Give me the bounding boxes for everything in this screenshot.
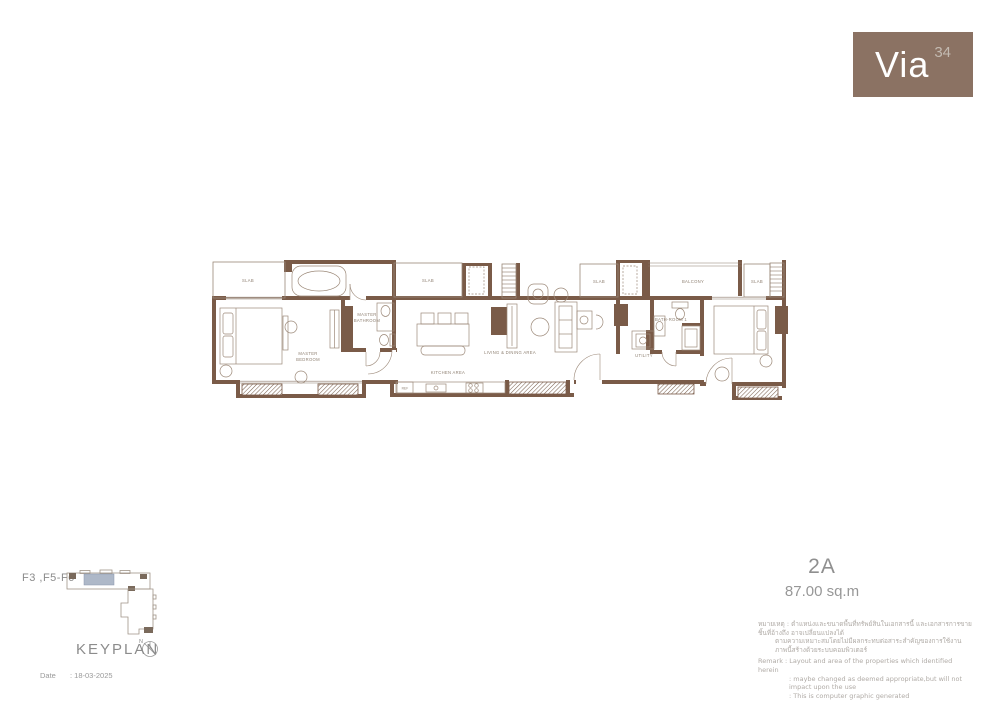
disclaimer-remark-line2: : maybe changed as deemed appropriate,bu… [758,675,973,692]
keyplan-unit-highlight [84,574,114,585]
disclaimer-block: หมายเหตุ : ตำแหน่งและขนาดพื้นที่ทรัพย์สิ… [758,620,973,700]
unit-info: 2A 87.00 sq.m [742,555,902,600]
keyplan-title: KEYPLAN [76,641,159,658]
remark-label: Remark [758,657,785,666]
date-label: Date [40,671,70,680]
remark-text-1: : Layout and area of the properties whic… [758,657,952,674]
slab-label-4: SLAB [751,279,763,284]
slab-label-2: SLAB [422,278,434,283]
brand-number: 34 [934,44,951,61]
disclaimer-thai-line1: หมายเหตุ : ตำแหน่งและขนาดพื้นที่ทรัพย์สิ… [758,620,973,637]
slab-label-1: SLAB [242,278,254,283]
master-bedroom-label-1: MASTER [298,351,317,356]
kitchen-fixtures [396,382,505,393]
balcony-label: BALCONY [682,279,704,284]
bathroom1-label: BATH-ROOM 1 [655,317,687,322]
bathroom1-utility-fixtures [632,302,700,350]
disclaimer-thai-line2: ตามความเหมาะสมโดยไม่มีผลกระทบต่อสาระสำคั… [758,637,973,646]
keyplan-building [67,570,156,634]
utility-label: UTILITY [635,353,653,358]
brand-name: Via [875,47,929,83]
living-dining-label: LIVING & DINING AREA [484,350,536,355]
master-bathroom-label-1: MASTER [357,312,376,317]
floorplan-page: Via 34 [0,0,1000,707]
date-row: Date: 18-03-2025 [40,671,113,680]
date-value: : 18-03-2025 [70,671,113,680]
brand-logo: Via 34 [853,32,973,97]
disclaimer-remark-line3: : This is computer graphic generated [758,692,973,701]
bedroom2-furniture [714,306,772,381]
unit-area: 87.00 sq.m [742,583,902,600]
master-bedroom-label-2: BEDROOM [296,357,320,362]
disclaimer-remark-line1: Remark: Layout and area of the propertie… [758,657,973,674]
master-bathroom-label-2: BATHROOM [354,318,380,323]
master-bedroom-furniture [220,308,339,383]
floor-plan: SLAB SLAB SLAB SLAB BALCONY MASTER BATHR… [205,250,800,410]
ref-label: REF [402,387,409,391]
door-gaps [350,296,732,386]
slab-label-3: SLAB [593,279,605,284]
living-dining-furniture [417,284,603,355]
disclaimer-thai-line3: ภาพนี้สร้างด้วยระบบคอมพิวเตอร์ [758,646,973,655]
kitchen-label: KITCHEN AREA [431,370,465,375]
unit-name: 2A [742,555,902,579]
